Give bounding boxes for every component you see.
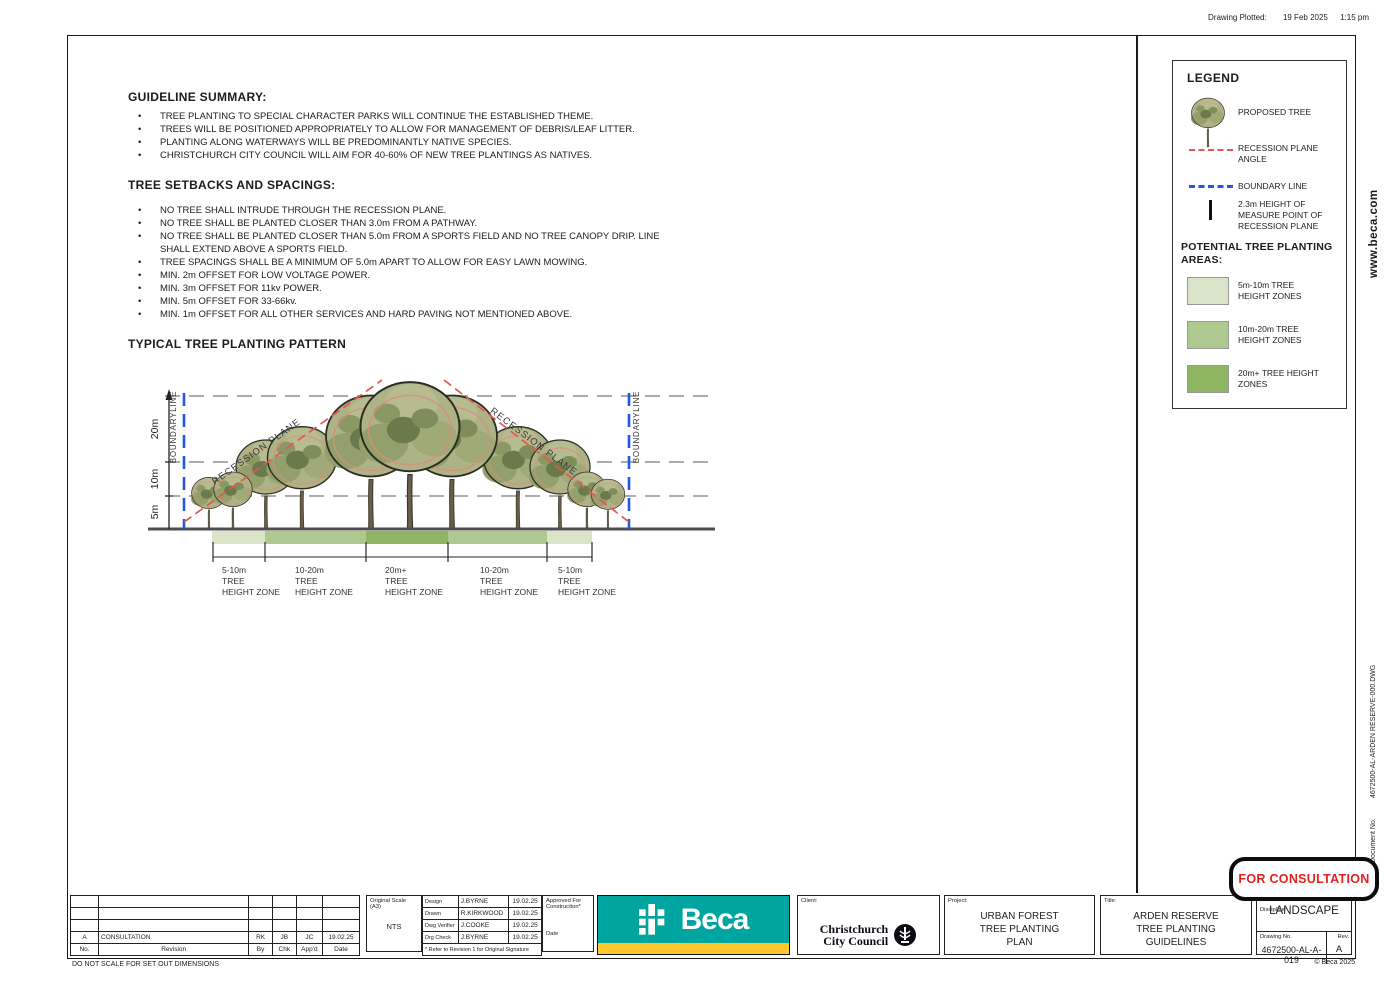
plot-info: Drawing Plotted: 19 Feb 2025 1:15 pm: [1208, 13, 1379, 22]
rev-value: A: [1327, 944, 1351, 955]
list-item: CHRISTCHURCH CITY COUNCIL WILL AIM FOR 4…: [130, 149, 690, 162]
svg-text:HEIGHT ZONE: HEIGHT ZONE: [558, 587, 616, 597]
revision-row-a: A CONSULTATION RK JB JC 19.02.25: [71, 932, 360, 944]
client-label: Client:: [798, 896, 939, 904]
document-no-label: Document No.: [1370, 818, 1377, 863]
boundary-line-dash-icon: [1189, 185, 1233, 188]
svg-text:5-10m: 5-10m: [558, 565, 582, 575]
zone-swatch-5-10m: [1187, 277, 1229, 305]
beca-yellow-stripe: [598, 943, 789, 954]
scale-label: Original Scale (A3): [367, 896, 410, 910]
consultation-stamp: FOR CONSULTATION: [1229, 857, 1379, 901]
zone-bar-20m: [366, 531, 448, 544]
recession-plane-dash-icon: [1189, 149, 1233, 151]
christchurch-city-council-logo: Christchurch City Council: [798, 912, 939, 958]
table-row: Drg Check J.BYRNE 19.02.25: [423, 932, 542, 944]
table-row: Design J.BYRNE 19.02.25: [423, 896, 542, 908]
svg-text:HEIGHT ZONE: HEIGHT ZONE: [222, 587, 280, 597]
legend-area-label: 5m-10m TREE HEIGHT ZONES: [1238, 280, 1328, 302]
table-row: Drawn R.KIRKWOOD 19.02.25: [423, 908, 542, 920]
svg-text:TREE: TREE: [295, 576, 318, 586]
boundary-label-right: BOUNDARYLINE: [632, 391, 641, 464]
list-item: MIN. 2m OFFSET FOR LOW VOLTAGE POWER.: [130, 269, 690, 282]
beca-logo: Beca: [598, 896, 789, 943]
axis-label-10m: 10m: [149, 469, 161, 490]
legend-boundary-line-label: BOUNDARY LINE: [1238, 181, 1340, 192]
discipline-label: Discipline:: [1260, 907, 1286, 913]
plot-date: 19 Feb 2025: [1283, 13, 1328, 22]
zone-label: 10-20m TREE HEIGHT ZONE: [295, 565, 353, 597]
proposed-tree: [591, 479, 625, 529]
list-item: NO TREE SHALL INTRUDE THROUGH THE RECESS…: [130, 204, 690, 217]
approved-date-label: Date: [546, 931, 558, 937]
ccc-emblem-icon: [893, 923, 917, 947]
measure-point-tick-icon: [1209, 200, 1212, 220]
plot-label: Drawing Plotted:: [1208, 13, 1267, 22]
svg-text:TREE: TREE: [480, 576, 503, 586]
zone-label: 5-10m TREE HEIGHT ZONE: [558, 565, 616, 597]
approved-label: Approved For Construction*: [543, 896, 593, 910]
proposed-tree: [359, 382, 460, 529]
zone-label: 5-10m TREE HEIGHT ZONE: [222, 565, 280, 597]
legend-panel: LEGEND PROPOSED TREE RECESSION PLANE ANG…: [1172, 60, 1347, 409]
legend-proposed-tree-label: PROPOSED TREE: [1238, 107, 1338, 118]
list-item: MIN. 5m OFFSET FOR 33-66kv.: [130, 295, 690, 308]
zone-bar-5-10m: [212, 531, 265, 544]
signoff-footnote-row: * Refer to Revision 1 for Original Signa…: [423, 944, 542, 956]
table-row: [71, 896, 360, 908]
list-item: MIN. 3m OFFSET FOR 11kv POWER.: [130, 282, 690, 295]
svg-text:TREE: TREE: [385, 576, 408, 586]
legend-area-label: 20m+ TREE HEIGHT ZONES: [1238, 368, 1328, 390]
svg-text:HEIGHT ZONE: HEIGHT ZONE: [295, 587, 353, 597]
title-label: Title:: [1101, 896, 1251, 904]
client-box: Client: Christchurch City Council: [797, 895, 940, 955]
copyright-note: © Beca 2025: [1255, 959, 1355, 966]
svg-text:10-20m: 10-20m: [480, 565, 509, 575]
drawing-no-label: Drawing No.: [1260, 934, 1292, 940]
svg-text:HEIGHT ZONE: HEIGHT ZONE: [385, 587, 443, 597]
signoff-footnote: * Refer to Revision 1 for Original Signa…: [423, 944, 542, 956]
approved-box: Approved For Construction* Date: [542, 895, 594, 952]
drawing-title: ARDEN RESERVE TREE PLANTING GUIDELINES: [1101, 910, 1251, 949]
guideline-summary-heading: GUIDELINE SUMMARY:: [128, 90, 267, 104]
revision-table: A CONSULTATION RK JB JC 19.02.25 No. Rev…: [70, 895, 360, 956]
list-item: NO TREE SHALL BE PLANTED CLOSER THAN 5.0…: [130, 230, 690, 256]
svg-text:20m+: 20m+: [385, 565, 407, 575]
list-item: TREE SPACINGS SHALL BE A MINIMUM OF 5.0m…: [130, 256, 690, 269]
scale-value: NTS: [367, 922, 421, 931]
project-name: URBAN FOREST TREE PLANTING PLAN: [945, 910, 1094, 949]
drawing-sheet: Drawing Plotted: 19 Feb 2025 1:15 pm GUI…: [0, 0, 1399, 989]
guideline-summary-list: TREE PLANTING TO SPECIAL CHARACTER PARKS…: [130, 110, 690, 162]
plot-time: 1:15 pm: [1340, 13, 1369, 22]
table-row: Dwg Verifier J.COOKE 19.02.25: [423, 920, 542, 932]
do-not-scale-note: DO NOT SCALE FOR SET OUT DIMENSIONS: [72, 961, 219, 968]
rev-label: Rev.: [1338, 934, 1350, 940]
signoff-table: Design J.BYRNE 19.02.25 Drawn R.KIRKWOOD…: [422, 895, 542, 956]
diagram-heading: TYPICAL TREE PLANTING PATTERN: [128, 337, 346, 351]
svg-text:10-20m: 10-20m: [295, 565, 324, 575]
document-no-value: 4672500-AL-ARDEN RESERVE-000.DWG: [1370, 665, 1377, 798]
legend-area-label: 10m-20m TREE HEIGHT ZONES: [1238, 324, 1328, 346]
svg-text:HEIGHT ZONE: HEIGHT ZONE: [480, 587, 538, 597]
zone-bar-10-20m: [448, 531, 547, 544]
zone-label: 10-20m TREE HEIGHT ZONE: [480, 565, 538, 597]
list-item: TREE PLANTING TO SPECIAL CHARACTER PARKS…: [130, 110, 690, 123]
project-label: Project:: [945, 896, 1094, 904]
svg-text:5-10m: 5-10m: [222, 565, 246, 575]
tree-setbacks-list: NO TREE SHALL INTRUDE THROUGH THE RECESS…: [130, 204, 690, 321]
zone-swatch-20m: [1187, 365, 1229, 393]
zone-label: 20m+ TREE HEIGHT ZONE: [385, 565, 443, 597]
table-row: [71, 920, 360, 932]
scale-box: Original Scale (A3) NTS: [366, 895, 422, 952]
zone-swatch-10-20m: [1187, 321, 1229, 349]
revision-header-row: No. Revision By Chk App'd Date: [71, 944, 360, 956]
frame-divider: [1136, 35, 1138, 893]
axis-label-5m: 5m: [149, 504, 161, 519]
proposed-tree-icon: [1185, 95, 1231, 149]
table-row: [71, 908, 360, 920]
planting-pattern-diagram: 5m 10m 20m BOUNDARYLINE BOUNDARYLINE REC…: [140, 370, 740, 615]
project-box: Project: URBAN FOREST TREE PLANTING PLAN: [944, 895, 1095, 955]
legend-measure-point-label: 2.3m HEIGHT OF MEASURE POINT OF RECESSIO…: [1238, 199, 1343, 232]
list-item: MIN. 1m OFFSET FOR ALL OTHER SERVICES AN…: [130, 308, 690, 321]
drawing-title-box: Title: ARDEN RESERVE TREE PLANTING GUIDE…: [1100, 895, 1252, 955]
boundary-label-left: BOUNDARYLINE: [169, 391, 178, 464]
zone-bar-5-10m: [547, 531, 592, 544]
legend-title: LEGEND: [1187, 71, 1239, 85]
beca-logo-block: Beca: [597, 895, 790, 955]
tree-setbacks-heading: TREE SETBACKS AND SPACINGS:: [128, 178, 335, 192]
axis-label-20m: 20m: [149, 419, 161, 440]
list-item: TREES WILL BE POSITIONED APPROPRIATELY T…: [130, 123, 690, 136]
document-number-vertical: Document No. 4672500-AL-ARDEN RESERVE-00…: [1370, 635, 1377, 863]
zone-bar-10-20m: [265, 531, 366, 544]
discipline-box: Discipline: LANDSCAPE Drawing No. 467250…: [1256, 895, 1352, 955]
beca-grid-icon: [639, 904, 671, 936]
svg-text:TREE: TREE: [558, 576, 581, 586]
client-name-line2: City Council: [820, 935, 888, 947]
beca-website-vertical: www.beca.com: [1368, 148, 1380, 278]
legend-areas-heading: POTENTIAL TREE PLANTING AREAS:: [1181, 241, 1341, 267]
list-item: PLANTING ALONG WATERWAYS WILL BE PREDOMI…: [130, 136, 690, 149]
beca-wordmark: Beca: [681, 905, 749, 935]
legend-recession-plane-label: RECESSION PLANE ANGLE: [1238, 143, 1340, 165]
list-item: NO TREE SHALL BE PLANTED CLOSER THAN 3.0…: [130, 217, 690, 230]
svg-text:TREE: TREE: [222, 576, 245, 586]
